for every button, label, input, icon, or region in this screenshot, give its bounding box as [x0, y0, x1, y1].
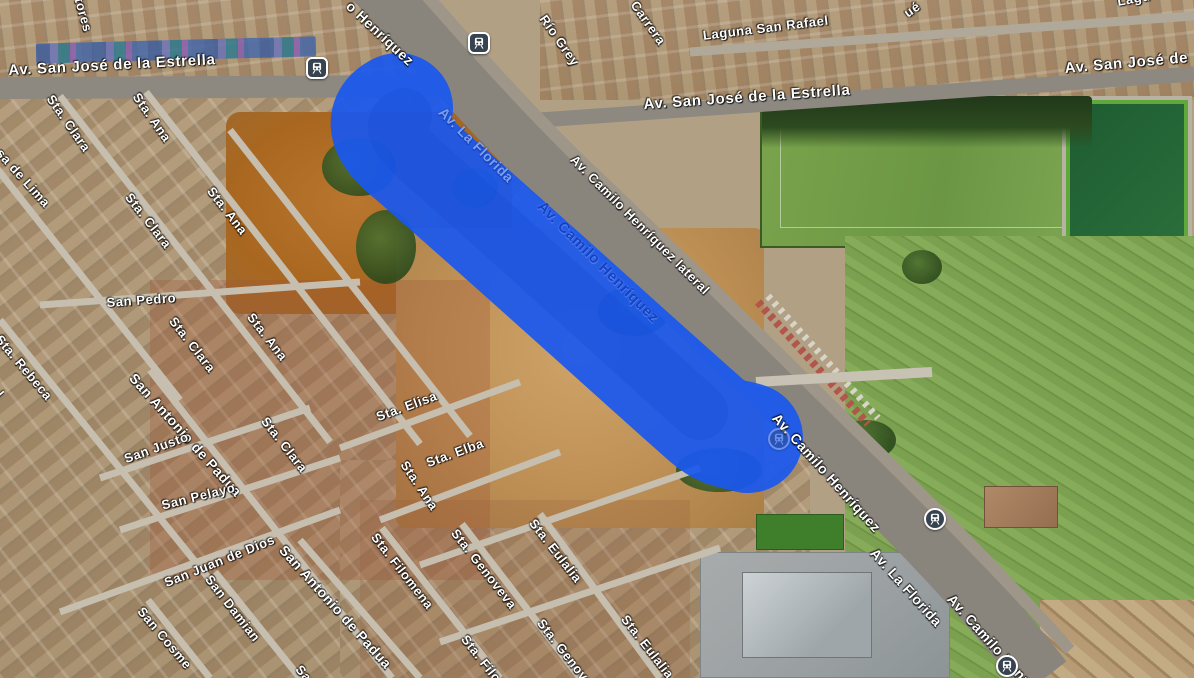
transit-station-icon[interactable] — [468, 32, 490, 54]
road-av-san-jose-east — [540, 74, 1194, 120]
roads-layer — [0, 0, 1194, 678]
transit-station-icon-under-route[interactable] — [768, 428, 790, 450]
train-icon — [772, 432, 786, 446]
transit-station-icon[interactable] — [306, 57, 328, 79]
transit-station-icon[interactable] — [924, 508, 946, 530]
transit-station-icon[interactable] — [996, 655, 1018, 677]
train-icon — [928, 512, 942, 526]
train-icon — [310, 61, 324, 75]
road-laguna-san-rafael — [690, 16, 1194, 52]
train-icon — [472, 36, 486, 50]
train-icon — [1000, 659, 1014, 673]
map-canvas[interactable]: Av. San José de la Estrella tores o Henr… — [0, 0, 1194, 678]
